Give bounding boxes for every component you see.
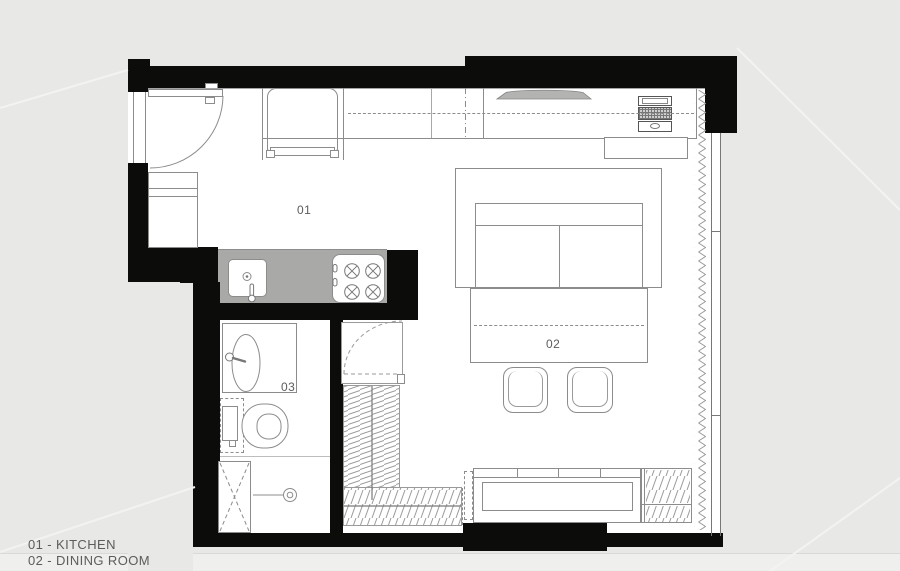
exterior-patch	[128, 282, 193, 571]
fridge-niche-line	[343, 88, 344, 160]
door-jamb-line	[145, 92, 146, 163]
dining-chair	[503, 367, 548, 413]
table-dashline	[474, 325, 644, 326]
cabinet-split-line	[641, 504, 692, 505]
wardrobe-dash-edge	[462, 488, 463, 525]
trackpad-oval	[650, 123, 660, 129]
wall-face-line	[148, 88, 705, 89]
sideboard-inner-panel	[482, 482, 633, 511]
wall-segment	[193, 533, 466, 547]
tall-cabinet	[148, 172, 198, 248]
room-label-dining: 02	[546, 337, 560, 351]
door-hinge	[397, 374, 405, 384]
kitchen-sink	[228, 259, 267, 297]
wall-segment	[218, 303, 418, 320]
counter-end-line	[696, 88, 697, 138]
wardrobe-rail-vertical	[343, 385, 400, 488]
fridge-niche-line	[262, 88, 263, 160]
legend-item-kitchen: 01 - KITCHEN	[28, 537, 150, 553]
cooktop	[332, 254, 385, 303]
bathroom-door	[341, 322, 403, 384]
overhead-cabinet-dashline	[348, 113, 694, 114]
floorplan-canvas: 01 02 03 01 - KITCHEN 02 - DINING ROOM	[0, 0, 900, 571]
door-jamb-line	[133, 92, 134, 163]
wall-segment	[180, 250, 218, 283]
wall-segment	[607, 533, 723, 547]
toilet-cistern	[222, 406, 238, 441]
refrigerator-door	[270, 147, 335, 156]
refrigerator-handle	[266, 150, 275, 158]
window-mullion	[711, 231, 721, 232]
laptop-screen-inner	[642, 98, 668, 104]
dining-chair	[567, 367, 613, 413]
cabinet-shelf-line	[149, 188, 197, 189]
chair-seat-line	[572, 371, 608, 407]
wall-segment	[705, 88, 737, 133]
wall-segment	[193, 282, 220, 547]
wall-segment	[465, 56, 737, 88]
room-label-kitchen: 01	[297, 203, 311, 217]
cabinet-shelf-line	[149, 196, 197, 197]
wardrobe-rail-bottom	[343, 487, 462, 526]
toilet-flush-button	[229, 440, 236, 447]
shower-tray	[218, 461, 251, 533]
window-frame-line	[720, 133, 721, 536]
room-label-bathroom: 03	[281, 380, 295, 394]
chair-seat-line	[508, 371, 543, 407]
refrigerator	[267, 88, 338, 151]
legend: 01 - KITCHEN 02 - DINING ROOM	[28, 537, 150, 569]
entry-door-leaf	[148, 89, 223, 97]
cabinet-split-line	[644, 468, 645, 523]
desk-return	[604, 137, 688, 159]
sofa-backrest	[475, 203, 643, 226]
wall-segment	[463, 523, 607, 551]
refrigerator-handle	[330, 150, 339, 158]
sideboard-end-panel	[464, 471, 473, 520]
bathroom-zone-line	[220, 456, 330, 457]
window-mullion	[711, 415, 721, 416]
sofa-cushion-divider	[559, 226, 560, 287]
window-frame-line	[711, 133, 712, 536]
storage-cabinet	[641, 468, 692, 523]
legend-item-dining-room: 02 - DINING ROOM	[28, 553, 150, 569]
door-handle	[205, 97, 215, 104]
wall-segment	[128, 59, 150, 92]
wall-segment	[148, 66, 465, 88]
